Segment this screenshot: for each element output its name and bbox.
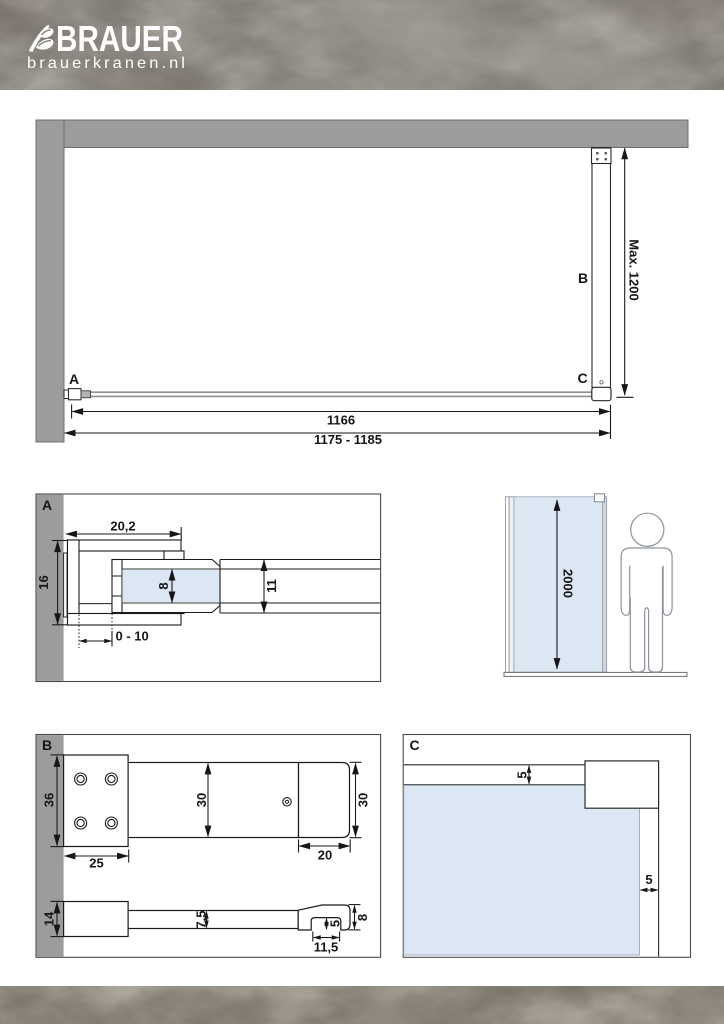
svg-text:brauerkranen.nl: brauerkranen.nl — [27, 55, 188, 72]
svg-text:36: 36 — [42, 793, 57, 807]
svg-text:11,5: 11,5 — [314, 940, 339, 955]
svg-text:C: C — [577, 370, 587, 386]
svg-text:5: 5 — [645, 872, 652, 887]
svg-text:25: 25 — [89, 856, 103, 871]
svg-text:Max. 1200: Max. 1200 — [627, 239, 642, 300]
svg-text:30: 30 — [356, 793, 371, 807]
svg-text:5: 5 — [328, 920, 343, 927]
svg-text:14: 14 — [42, 911, 57, 926]
svg-text:5: 5 — [515, 771, 530, 778]
svg-text:7,5: 7,5 — [194, 910, 209, 928]
svg-text:1166: 1166 — [327, 413, 355, 428]
svg-text:8: 8 — [355, 914, 370, 921]
svg-text:A: A — [42, 497, 52, 513]
svg-text:20: 20 — [318, 848, 332, 863]
svg-text:20,2: 20,2 — [110, 519, 135, 534]
svg-text:C: C — [410, 737, 420, 753]
svg-text:B: B — [578, 270, 588, 286]
svg-text:A: A — [69, 371, 79, 387]
svg-text:2000: 2000 — [561, 569, 576, 598]
svg-text:BRAUER: BRAUER — [56, 18, 183, 59]
svg-text:B: B — [42, 737, 52, 753]
svg-text:8: 8 — [156, 582, 171, 589]
svg-text:11: 11 — [264, 579, 279, 593]
svg-text:1175 - 1185: 1175 - 1185 — [314, 432, 382, 447]
svg-text:0 - 10: 0 - 10 — [116, 629, 149, 644]
svg-text:16: 16 — [36, 575, 51, 589]
svg-text:30: 30 — [194, 793, 209, 807]
